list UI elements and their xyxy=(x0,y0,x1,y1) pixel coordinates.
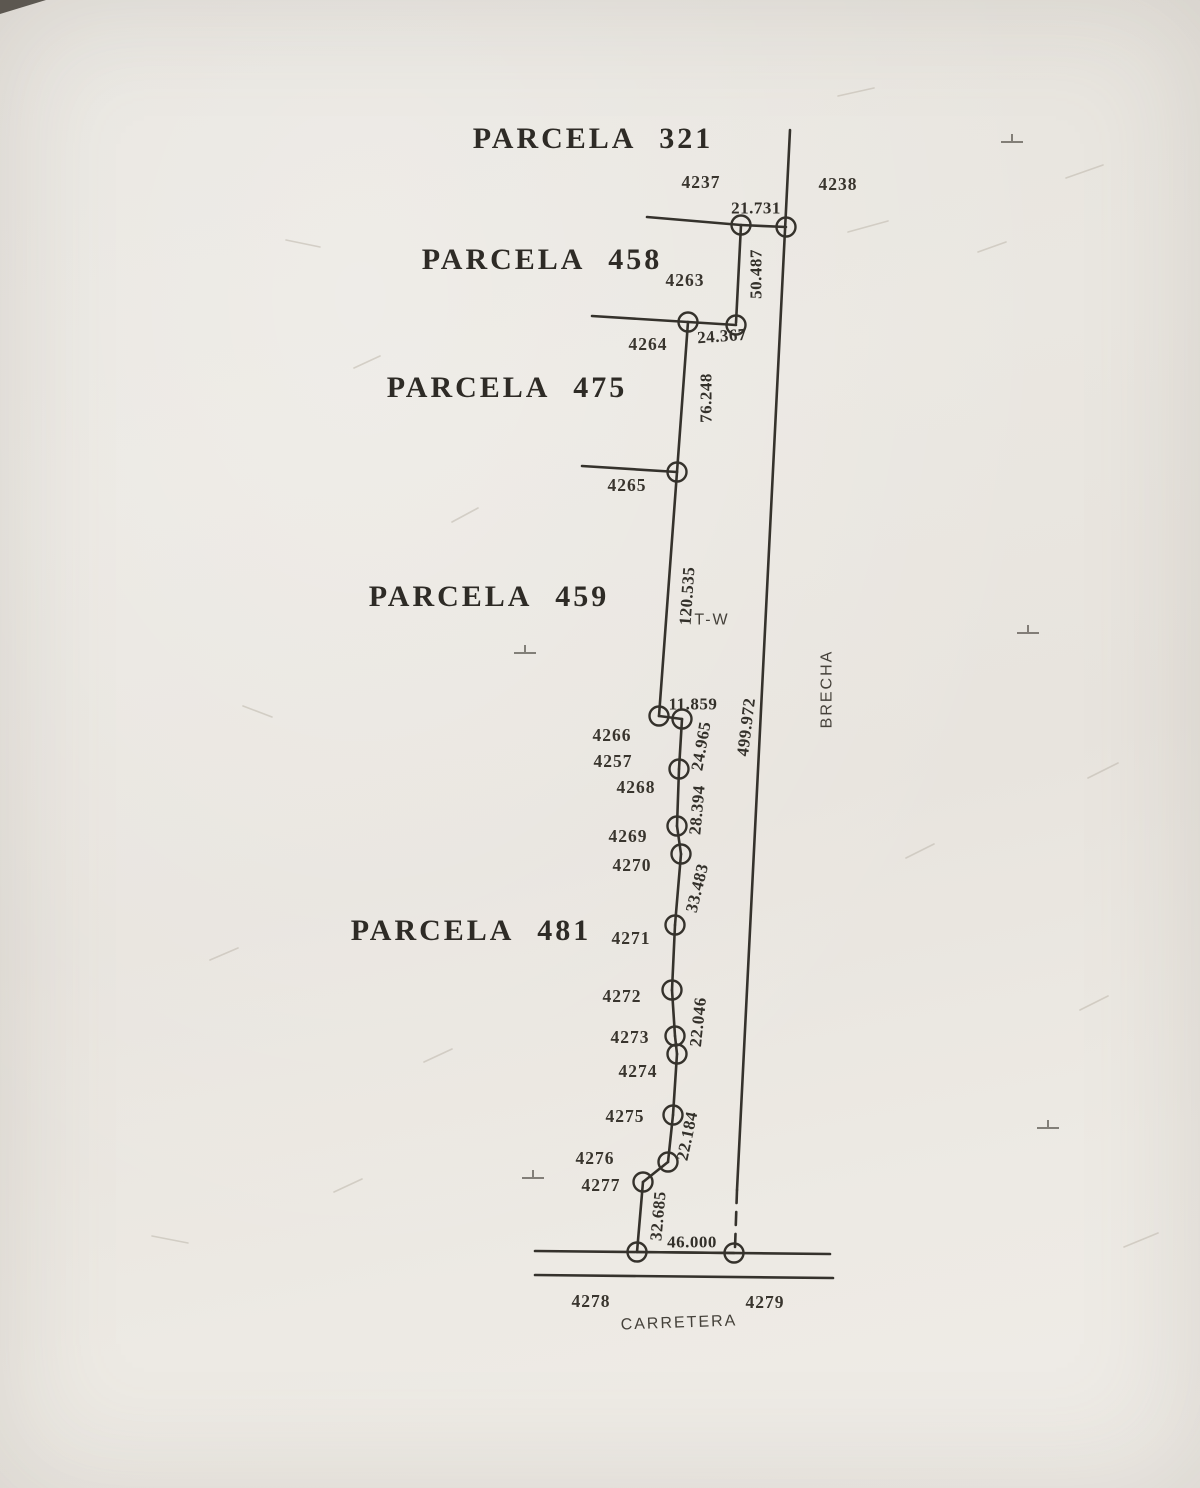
point-label: 4270 xyxy=(613,855,652,875)
boundary-line xyxy=(647,217,741,225)
annotation-label: BRECHA xyxy=(819,650,836,729)
boundary-line xyxy=(736,225,741,323)
paper-scratch xyxy=(1088,763,1118,778)
point-label: 4268 xyxy=(617,777,656,797)
distance-label: 24.965 xyxy=(687,720,714,772)
point-label: 4265 xyxy=(608,475,647,495)
distance-label: 21.731 xyxy=(731,199,781,218)
parcel-title: PARCELA 475 xyxy=(387,371,628,404)
annotation-label: T-W xyxy=(694,612,729,629)
distance-label: 50.487 xyxy=(747,249,766,299)
distance-label: 28.394 xyxy=(685,784,708,835)
point-label: 4272 xyxy=(603,986,642,1006)
point-label: 4263 xyxy=(666,270,705,290)
boundary-line xyxy=(535,1275,833,1278)
boundary-line xyxy=(677,826,681,854)
point-label: 4257 xyxy=(594,751,633,771)
distance-label: 33.483 xyxy=(682,862,712,915)
point-label: 4269 xyxy=(609,826,648,846)
boundary-line xyxy=(668,1115,673,1162)
paper-scratch xyxy=(286,240,320,247)
survey-drawing: PARCELA 321PARCELA 458PARCELA 475PARCELA… xyxy=(0,0,1200,1488)
registration-mark xyxy=(514,645,536,653)
point-label: 4238 xyxy=(819,174,858,194)
boundary-line xyxy=(741,225,786,227)
paper-scratch xyxy=(354,356,380,368)
scanned-survey-sheet: PARCELA 321PARCELA 458PARCELA 475PARCELA… xyxy=(0,0,1200,1488)
paper-scratch xyxy=(452,508,478,522)
boundary-line xyxy=(637,1252,734,1253)
registration-mark xyxy=(1017,625,1039,633)
paper-scratch xyxy=(848,221,888,232)
point-label: 4277 xyxy=(582,1175,621,1195)
annotation-label: CARRETERA xyxy=(620,1312,737,1333)
boundary-line xyxy=(659,716,682,719)
scan-corner-shadow xyxy=(0,0,46,14)
paper-scratch xyxy=(978,242,1006,252)
boundary-line xyxy=(659,472,677,716)
point-label: 4273 xyxy=(611,1027,650,1047)
distance-label: 22.184 xyxy=(673,1110,702,1163)
parcel-title: PARCELA 481 xyxy=(351,914,592,947)
boundary-line xyxy=(688,322,736,325)
parcel-title: PARCELA 458 xyxy=(422,243,663,276)
paper-scratch xyxy=(838,88,874,96)
paper-scratch xyxy=(1124,1233,1158,1247)
point-label: 4279 xyxy=(746,1292,785,1312)
boundary-line xyxy=(677,322,688,472)
point-label: 4274 xyxy=(619,1061,658,1081)
distance-label: 11.859 xyxy=(669,695,718,714)
registration-mark xyxy=(522,1170,544,1178)
point-label: 4237 xyxy=(682,172,721,192)
point-label: 4271 xyxy=(612,928,651,948)
point-label: 4266 xyxy=(593,725,632,745)
point-label: 4264 xyxy=(629,334,668,354)
paper-scratch xyxy=(334,1179,362,1192)
registration-mark xyxy=(1001,134,1023,142)
registration-mark xyxy=(1037,1120,1059,1128)
boundary-line-dashed xyxy=(735,1190,737,1248)
parcel-title: PARCELA 459 xyxy=(369,580,610,613)
boundary-line xyxy=(592,316,688,322)
distance-label: 24.367 xyxy=(697,325,748,347)
boundary-line xyxy=(672,990,675,1036)
paper-scratch xyxy=(1080,996,1108,1010)
paper-scratch xyxy=(243,706,272,717)
boundary-line xyxy=(679,719,682,769)
paper-scratch xyxy=(210,948,238,960)
boundary-line xyxy=(582,466,677,472)
distance-label: 46.000 xyxy=(667,1233,717,1252)
paper-scratch xyxy=(152,1236,188,1243)
paper-scratch xyxy=(906,844,934,858)
distance-label: 499.972 xyxy=(733,697,759,758)
distance-label: 22.046 xyxy=(686,996,710,1047)
point-label: 4275 xyxy=(606,1106,645,1126)
paper-scratch xyxy=(1066,165,1103,178)
parcel-title: PARCELA 321 xyxy=(473,122,714,155)
distance-label: 76.248 xyxy=(697,373,716,423)
point-label: 4276 xyxy=(576,1148,615,1168)
point-label: 4278 xyxy=(572,1291,611,1311)
paper-scratch xyxy=(424,1049,452,1062)
